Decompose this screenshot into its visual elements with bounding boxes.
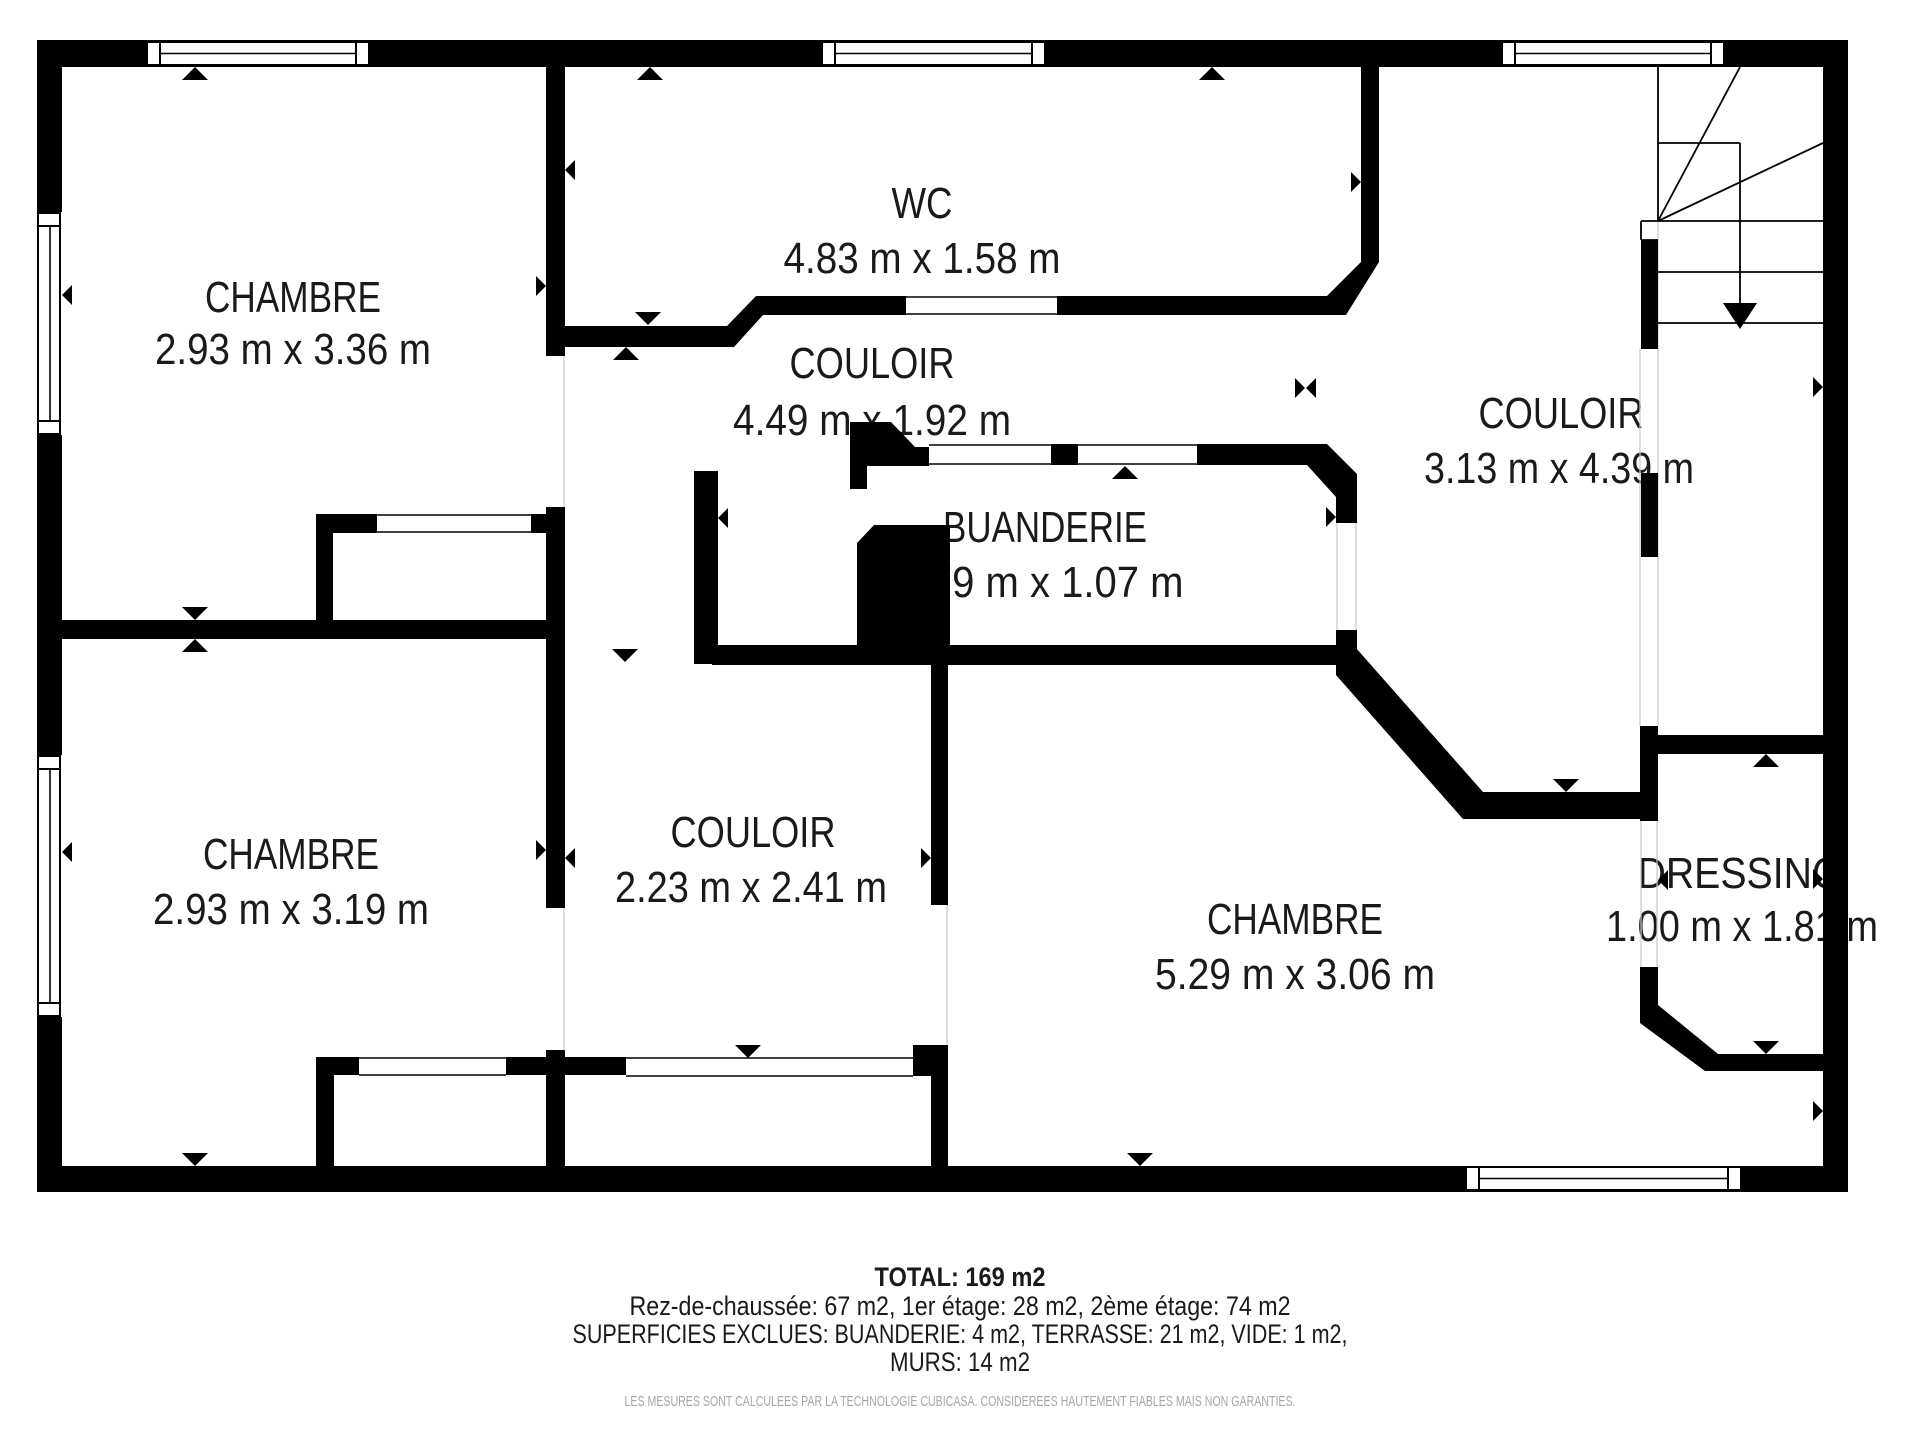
svg-text:DRESSING: DRESSING bbox=[1638, 849, 1843, 898]
svg-text:4.83 m x 1.58 m: 4.83 m x 1.58 m bbox=[784, 234, 1061, 283]
svg-text:CHAMBRE: CHAMBRE bbox=[1207, 895, 1383, 944]
svg-text:MURS: 14 m2: MURS: 14 m2 bbox=[890, 1347, 1030, 1377]
svg-text:TOTAL: 169 m2: TOTAL: 169 m2 bbox=[875, 1262, 1046, 1292]
svg-text:COULOIR: COULOIR bbox=[1479, 389, 1644, 438]
svg-text:5.29 m x 3.06 m: 5.29 m x 3.06 m bbox=[1155, 950, 1435, 999]
svg-text:2.93 m x 3.19 m: 2.93 m x 3.19 m bbox=[153, 885, 429, 934]
svg-text:COULOIR: COULOIR bbox=[671, 808, 836, 857]
svg-text:2.93 m x 3.36 m: 2.93 m x 3.36 m bbox=[155, 325, 431, 374]
svg-text:Rez-de-chaussée: 67 m2, 1er ét: Rez-de-chaussée: 67 m2, 1er étage: 28 m2… bbox=[630, 1291, 1291, 1321]
svg-text:CHAMBRE: CHAMBRE bbox=[205, 273, 381, 322]
svg-text:SUPERFICIES EXCLUES: BUANDERIE: SUPERFICIES EXCLUES: BUANDERIE: 4 m2, TE… bbox=[573, 1319, 1348, 1349]
svg-text:BUANDERIE: BUANDERIE bbox=[943, 503, 1147, 552]
svg-text:WC: WC bbox=[892, 179, 953, 228]
svg-text:2.23 m x 2.41 m: 2.23 m x 2.41 m bbox=[615, 863, 887, 912]
svg-text:CHAMBRE: CHAMBRE bbox=[203, 830, 379, 879]
svg-text:LES MESURES SONT CALCULEES PAR: LES MESURES SONT CALCULEES PAR LA TECHNO… bbox=[625, 1393, 1296, 1410]
svg-text:COULOIR: COULOIR bbox=[790, 339, 955, 388]
